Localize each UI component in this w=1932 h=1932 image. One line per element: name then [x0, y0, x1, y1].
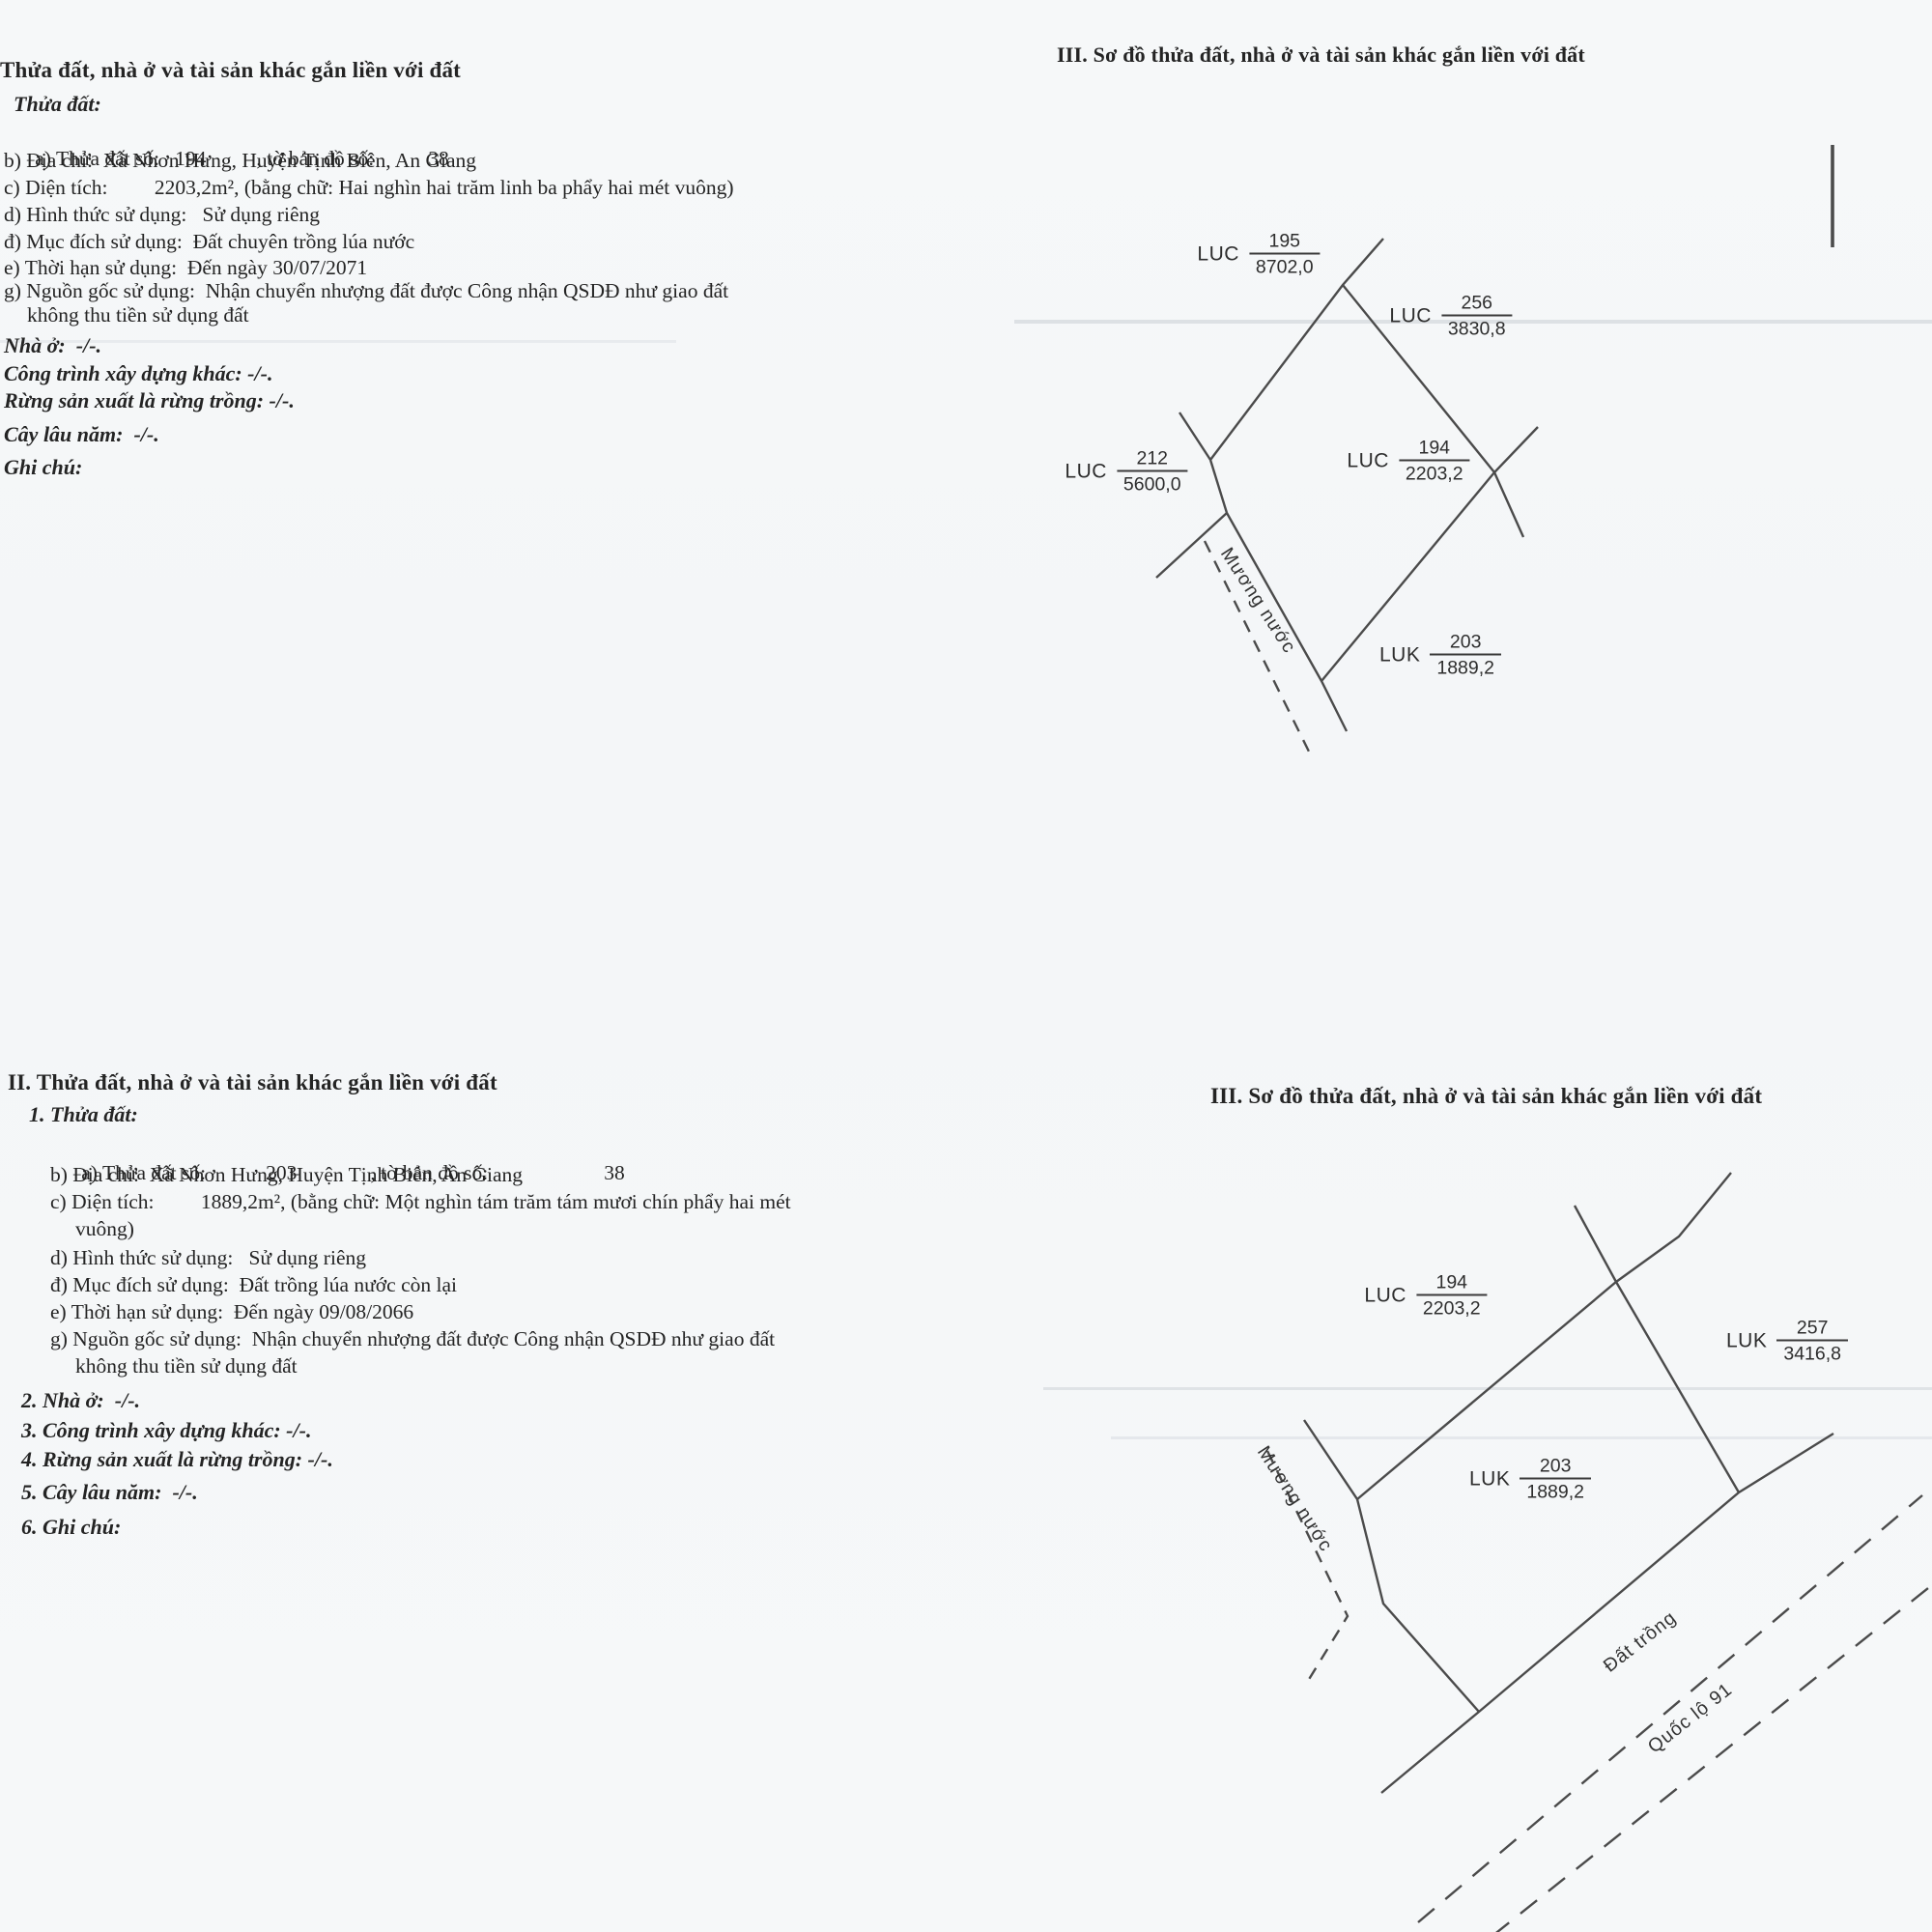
- parcel-number: 256: [1454, 293, 1499, 315]
- bottom-canal-solid-line: [1304, 1420, 1479, 1712]
- parcel-label-212: LUC 212 5600,0: [1065, 448, 1187, 496]
- parcel-area: 3416,8: [1776, 1340, 1848, 1365]
- parcel-area-fraction: 195 8702,0: [1249, 231, 1321, 278]
- parcel-area: 3830,8: [1441, 315, 1513, 340]
- top-canal-solid-line: [1156, 513, 1227, 578]
- parcel-area: 2203,2: [1416, 1294, 1488, 1320]
- parcel-label-194-top: LUC 194 2203,2: [1347, 438, 1469, 485]
- parcel-area-fraction: 212 5600,0: [1117, 448, 1188, 496]
- parcel-area-fraction: 256 3830,8: [1441, 293, 1513, 340]
- parcel-area: 5600,0: [1117, 470, 1188, 496]
- parcel-label-195: LUC 195 8702,0: [1197, 231, 1320, 278]
- road-lower-dashed-line: [1492, 1580, 1932, 1932]
- bottom-parcel-nw-edge: [1357, 1173, 1731, 1499]
- parcel-area-fraction: 203 1889,2: [1430, 632, 1501, 679]
- land-use-code: LUC: [1197, 242, 1239, 266]
- parcel-label-256: LUC 256 3830,8: [1389, 293, 1512, 340]
- parcel-number: 257: [1790, 1318, 1835, 1340]
- bottom-parcel-se-boundary: [1381, 1434, 1833, 1793]
- parcel-number: 194: [1411, 438, 1457, 460]
- parcel-area-fraction: 194 2203,2: [1416, 1272, 1488, 1320]
- land-use-code: LUC: [1389, 304, 1432, 327]
- land-use-code: LUC: [1364, 1284, 1406, 1307]
- parcel-area-fraction: 194 2203,2: [1399, 438, 1470, 485]
- parcel-number: 212: [1129, 448, 1175, 470]
- land-use-code: LUC: [1065, 460, 1107, 483]
- parcel-label-194-bottom: LUC 194 2203,2: [1364, 1272, 1487, 1320]
- parcel-label-203-top: LUK 203 1889,2: [1379, 632, 1501, 679]
- land-use-code: LUK: [1726, 1329, 1767, 1352]
- bottom-parcel-ne-edge: [1575, 1206, 1739, 1492]
- parcel-area: 1889,2: [1520, 1478, 1591, 1503]
- land-use-code: LUK: [1379, 643, 1420, 667]
- parcel-label-257: LUK 257 3416,8: [1726, 1318, 1848, 1365]
- parcel-area-fraction: 203 1889,2: [1520, 1456, 1591, 1503]
- land-use-code: LUK: [1469, 1467, 1510, 1491]
- parcel-area-fraction: 257 3416,8: [1776, 1318, 1848, 1365]
- parcel-number: 194: [1429, 1272, 1474, 1294]
- scanned-land-certificate-page: Thửa đất, nhà ở và tài sản khác gắn liền…: [0, 0, 1932, 1932]
- parcel-number: 195: [1262, 231, 1307, 253]
- land-use-code: LUC: [1347, 449, 1389, 472]
- top-parcel-west-edge: [1210, 460, 1227, 513]
- parcel-number: 203: [1443, 632, 1489, 654]
- parcel-label-203-bottom: LUK 203 1889,2: [1469, 1456, 1591, 1503]
- road-upper-dashed-line: [1418, 1495, 1922, 1922]
- parcel-area: 2203,2: [1399, 460, 1470, 485]
- parcel-area: 1889,2: [1430, 654, 1501, 679]
- parcel-number: 203: [1533, 1456, 1578, 1478]
- parcel-area: 8702,0: [1249, 253, 1321, 278]
